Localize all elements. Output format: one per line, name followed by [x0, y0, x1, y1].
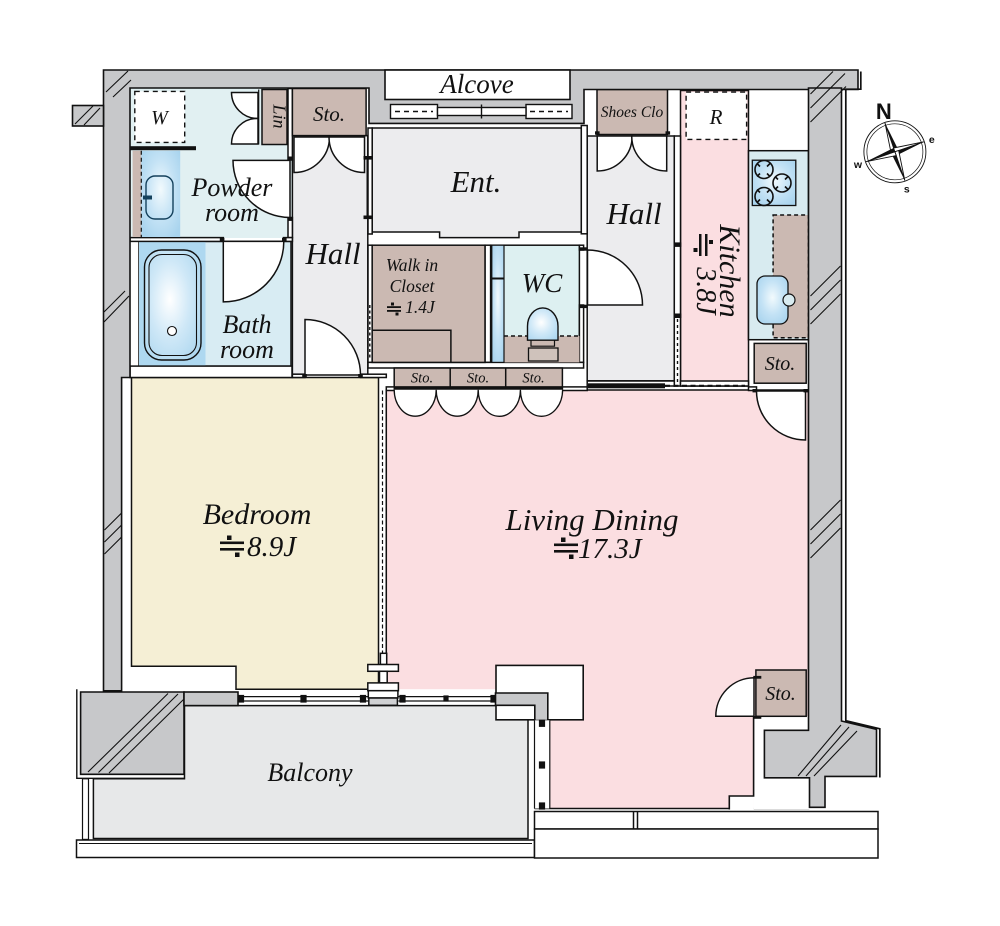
svg-text:Sto.: Sto. — [411, 371, 433, 387]
svg-text:Balcony: Balcony — [267, 758, 353, 787]
svg-text:3.8J: 3.8J — [690, 266, 721, 316]
svg-text:Walk in: Walk in — [386, 255, 439, 275]
svg-text:Sto.: Sto. — [467, 371, 489, 387]
svg-text:Sto.: Sto. — [313, 102, 345, 126]
svg-text:Sto.: Sto. — [765, 353, 796, 375]
svg-text:N: N — [876, 99, 892, 124]
svg-text:Hall: Hall — [605, 196, 661, 231]
svg-text:s: s — [904, 183, 910, 195]
svg-text:Lin: Lin — [270, 103, 290, 128]
svg-text:R: R — [709, 105, 723, 129]
svg-text:17.3J: 17.3J — [578, 533, 643, 565]
svg-text:Bedroom: Bedroom — [203, 498, 312, 531]
svg-text:Living Dining: Living Dining — [504, 502, 678, 537]
svg-text:8.9J: 8.9J — [247, 531, 297, 563]
svg-text:w: w — [853, 159, 863, 171]
svg-text:Alcove: Alcove — [438, 69, 513, 99]
svg-text:Closet: Closet — [390, 276, 436, 296]
svg-text:1.4J: 1.4J — [405, 297, 436, 317]
svg-text:W: W — [151, 107, 170, 129]
svg-text:WC: WC — [522, 268, 563, 298]
svg-text:Hall: Hall — [304, 236, 360, 271]
svg-text:Shoes Clo: Shoes Clo — [601, 104, 664, 121]
svg-text:Ent.: Ent. — [450, 164, 502, 199]
svg-text:Sto.: Sto. — [765, 683, 796, 705]
svg-text:Sto.: Sto. — [522, 371, 544, 387]
svg-text:room: room — [220, 335, 274, 364]
svg-text:room: room — [205, 198, 259, 227]
svg-text:e: e — [929, 134, 935, 146]
